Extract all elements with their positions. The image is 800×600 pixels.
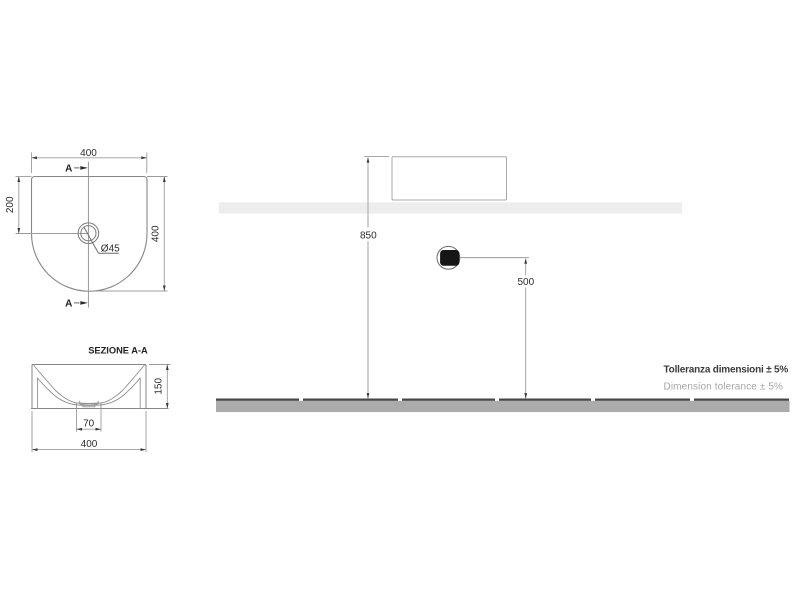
svg-text:200: 200 xyxy=(5,196,16,213)
svg-text:400: 400 xyxy=(80,148,97,159)
svg-text:70: 70 xyxy=(83,419,95,430)
svg-text:A: A xyxy=(65,299,72,310)
svg-text:Tolleranza dimensioni ± 5%: Tolleranza dimensioni ± 5% xyxy=(664,364,789,375)
svg-text:150: 150 xyxy=(154,378,165,395)
svg-text:Ø45: Ø45 xyxy=(101,244,120,255)
svg-text:SEZIONE A-A: SEZIONE A-A xyxy=(88,346,148,356)
svg-text:A: A xyxy=(65,164,72,175)
svg-text:500: 500 xyxy=(517,277,534,288)
svg-text:400: 400 xyxy=(151,225,162,242)
svg-text:850: 850 xyxy=(360,231,377,242)
svg-text:400: 400 xyxy=(81,439,98,450)
svg-text:Dimension tolerance ± 5%: Dimension tolerance ± 5% xyxy=(664,381,784,392)
